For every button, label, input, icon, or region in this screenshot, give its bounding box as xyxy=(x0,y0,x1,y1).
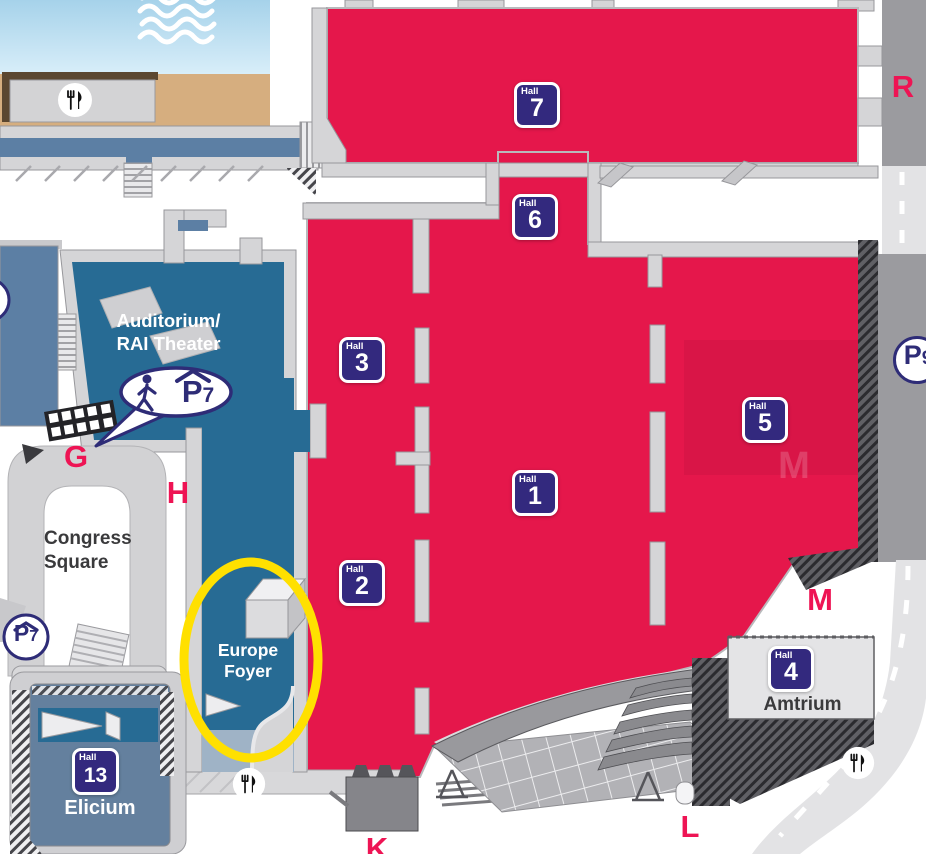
beach-strip xyxy=(0,72,270,126)
hall-7-badge: Hall7 xyxy=(514,82,560,128)
p9-icon xyxy=(895,338,926,383)
hall-6-badge: Hall6 xyxy=(512,194,558,240)
p7-gate-icon xyxy=(4,615,48,659)
restaurant-icon xyxy=(58,83,92,117)
hall-13-badge: Hall13 xyxy=(72,748,119,795)
hall-5-badge: Hall5 xyxy=(742,397,788,443)
hall-number: 1 xyxy=(515,482,555,511)
hall-number: 7 xyxy=(517,94,557,123)
restaurant-icon xyxy=(842,747,874,779)
hall-number: 13 xyxy=(75,764,116,788)
restaurant-icon xyxy=(233,768,265,800)
hall-number: 2 xyxy=(342,572,382,601)
hall-number: 6 xyxy=(515,206,555,235)
auditorium-stairs xyxy=(56,314,76,370)
hall-7-area xyxy=(327,8,858,163)
hall-badge-prefix: Hall xyxy=(79,752,96,763)
hall-2-badge: Hall2 xyxy=(339,560,385,606)
hall-5-east-wall xyxy=(858,240,878,562)
hall-4-badge: Hall4 xyxy=(768,646,814,692)
hall-1-badge: Hall1 xyxy=(512,470,558,516)
water-area xyxy=(0,0,270,74)
elevated-walkway xyxy=(0,122,326,197)
west-building xyxy=(0,240,62,426)
entrance-k-building xyxy=(346,777,418,831)
hall-number: 4 xyxy=(771,658,811,687)
south-platform xyxy=(168,765,418,831)
walkway-stairs xyxy=(124,163,152,197)
hall-3-badge: Hall3 xyxy=(339,337,385,383)
hall-number: 5 xyxy=(745,409,785,438)
hall-number: 3 xyxy=(342,349,382,378)
venue-map: Hall7 Hall6 Hall3 Hall1 Hall2 Hall5 Hall… xyxy=(0,0,926,854)
